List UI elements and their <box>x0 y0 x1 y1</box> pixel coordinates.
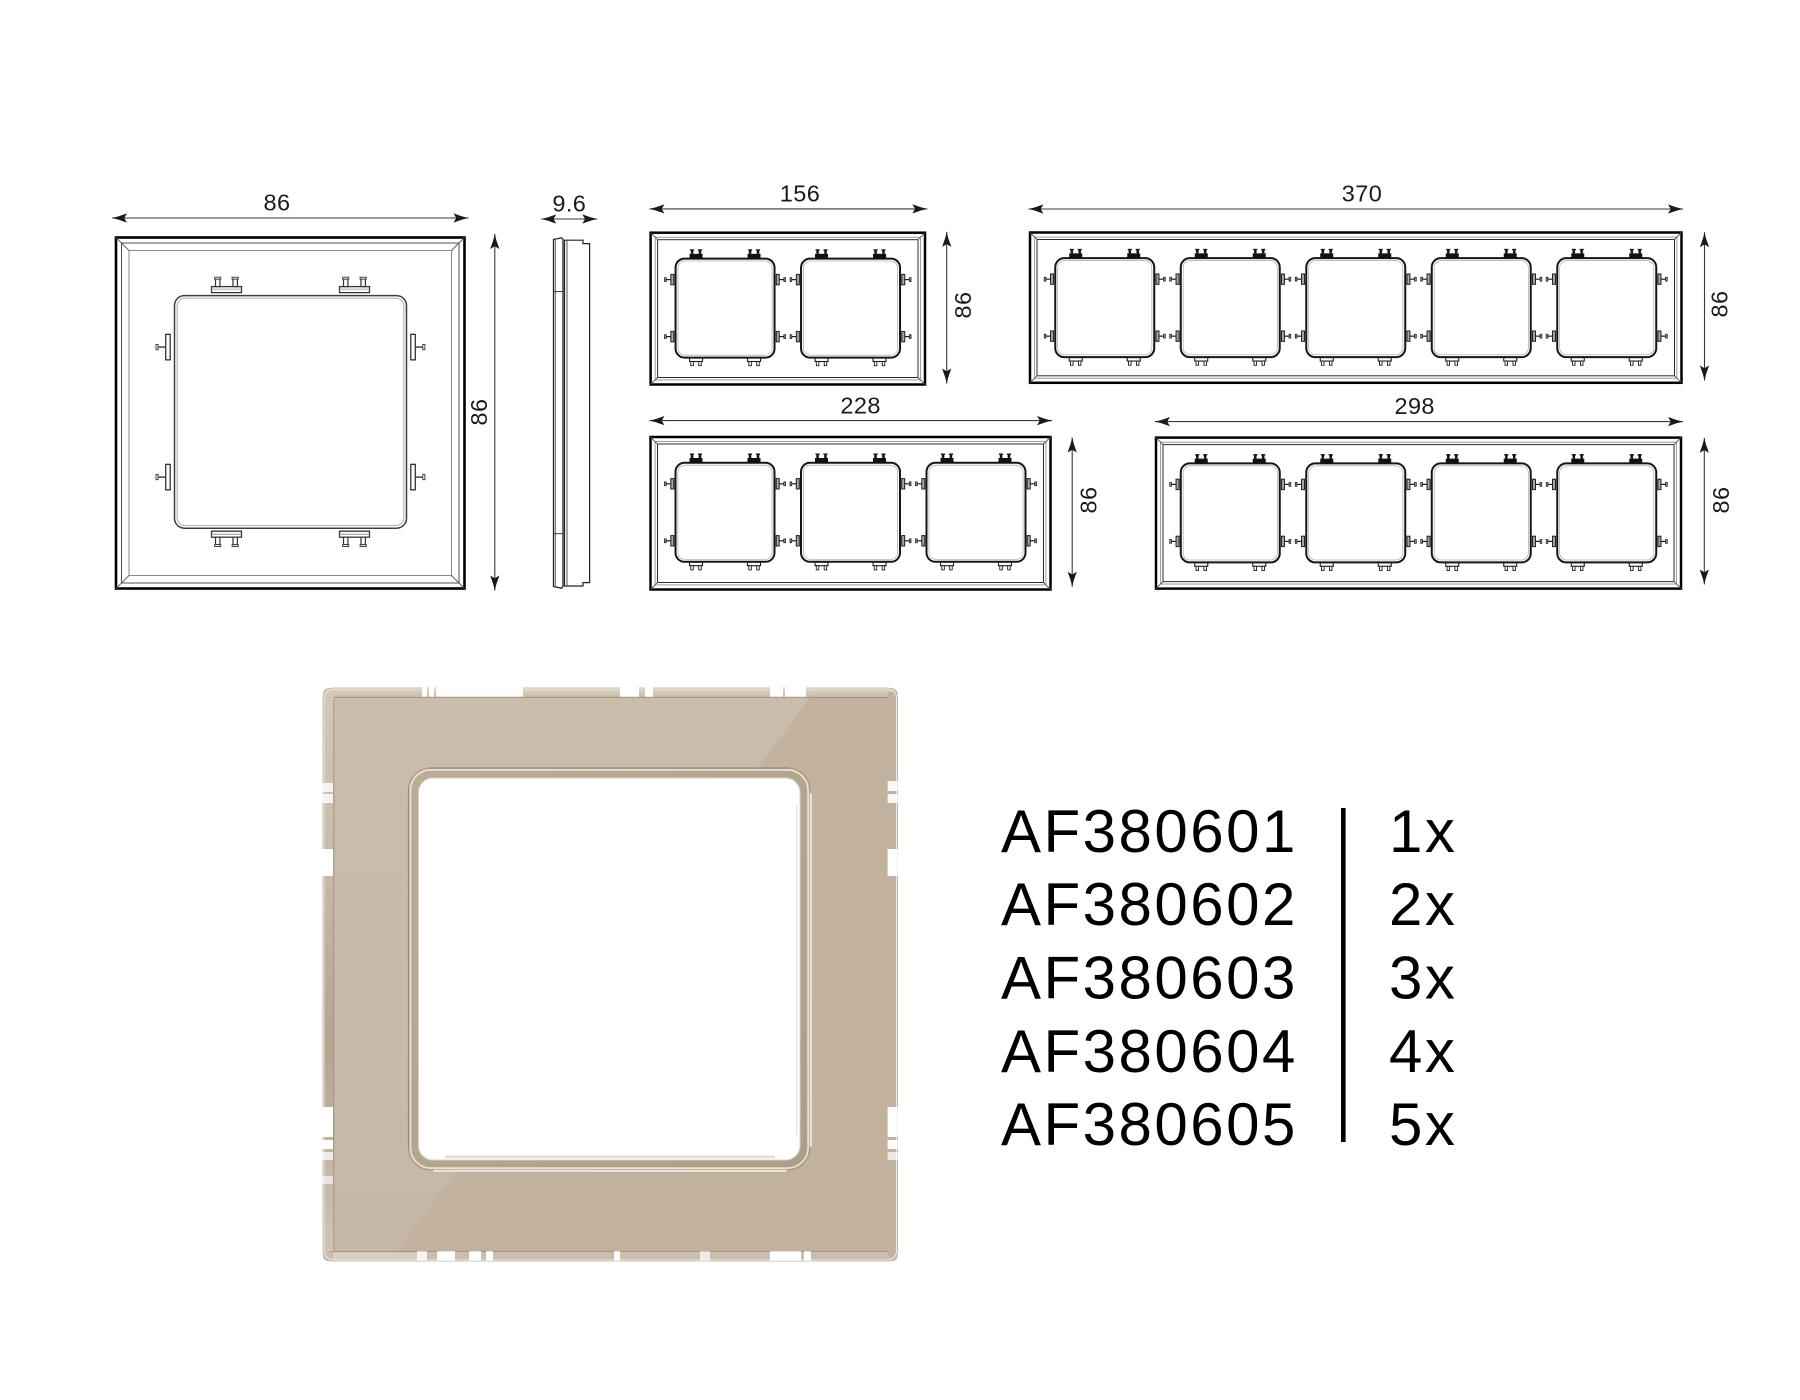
svg-text:86: 86 <box>466 399 492 426</box>
svg-text:9.6: 9.6 <box>552 191 586 217</box>
svg-text:AF380605: AF380605 <box>1001 1091 1298 1158</box>
svg-text:156: 156 <box>780 181 820 207</box>
svg-text:86: 86 <box>264 190 291 216</box>
svg-text:86: 86 <box>1076 487 1102 514</box>
svg-text:4x: 4x <box>1389 1018 1457 1085</box>
svg-text:AF380601: AF380601 <box>1001 798 1298 865</box>
svg-text:370: 370 <box>1342 181 1382 207</box>
svg-text:AF380603: AF380603 <box>1001 945 1298 1012</box>
svg-text:3x: 3x <box>1389 945 1457 1012</box>
svg-text:2x: 2x <box>1389 871 1457 938</box>
svg-text:5x: 5x <box>1389 1091 1457 1158</box>
svg-text:228: 228 <box>840 393 880 419</box>
svg-text:1x: 1x <box>1389 798 1457 865</box>
svg-text:AF380604: AF380604 <box>1001 1018 1298 1085</box>
svg-text:86: 86 <box>950 292 976 319</box>
svg-text:86: 86 <box>1708 487 1734 514</box>
svg-text:298: 298 <box>1394 393 1434 419</box>
svg-text:86: 86 <box>1707 291 1733 318</box>
svg-text:AF380602: AF380602 <box>1001 871 1298 938</box>
